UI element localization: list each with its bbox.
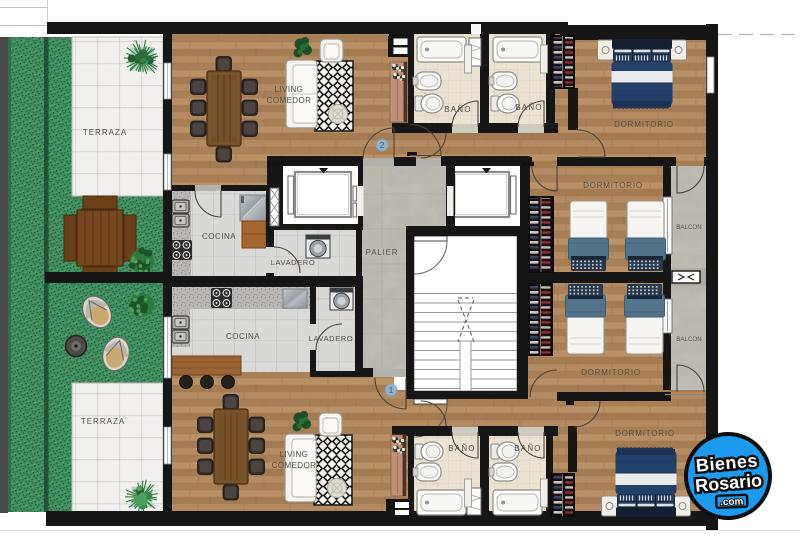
svg-text:BAÑO: BAÑO <box>448 444 475 453</box>
svg-text:BALCON: BALCON <box>676 224 701 231</box>
svg-text:DORMITORIO: DORMITORIO <box>614 120 674 129</box>
svg-text:1: 1 <box>389 385 394 395</box>
svg-text:PALIER: PALIER <box>366 248 399 257</box>
svg-text:COCINA: COCINA <box>226 332 260 341</box>
svg-text:LIVING: LIVING <box>275 85 304 94</box>
svg-text:DORMITORIO: DORMITORIO <box>583 181 643 190</box>
svg-text:BAÑO: BAÑO <box>515 103 542 112</box>
svg-text:LAVADERO: LAVADERO <box>309 334 354 343</box>
svg-text:COMEDOR: COMEDOR <box>267 96 312 105</box>
svg-text:2: 2 <box>380 140 385 150</box>
svg-text:COCINA: COCINA <box>202 232 236 241</box>
svg-text:DORMITORIO: DORMITORIO <box>581 368 641 377</box>
svg-text:DORMITORIO: DORMITORIO <box>615 429 675 438</box>
svg-text:TERRAZA: TERRAZA <box>81 417 125 426</box>
svg-text:BAÑO: BAÑO <box>444 105 471 114</box>
svg-text:COMEDOR: COMEDOR <box>272 461 317 470</box>
svg-text:BAÑO: BAÑO <box>514 444 541 453</box>
svg-text:TERRAZA: TERRAZA <box>83 128 127 137</box>
svg-text:.com: .com <box>720 496 744 508</box>
svg-text:BALCON: BALCON <box>676 336 701 343</box>
svg-text:LIVING: LIVING <box>280 450 309 459</box>
svg-text:LAVADERO: LAVADERO <box>271 258 316 267</box>
